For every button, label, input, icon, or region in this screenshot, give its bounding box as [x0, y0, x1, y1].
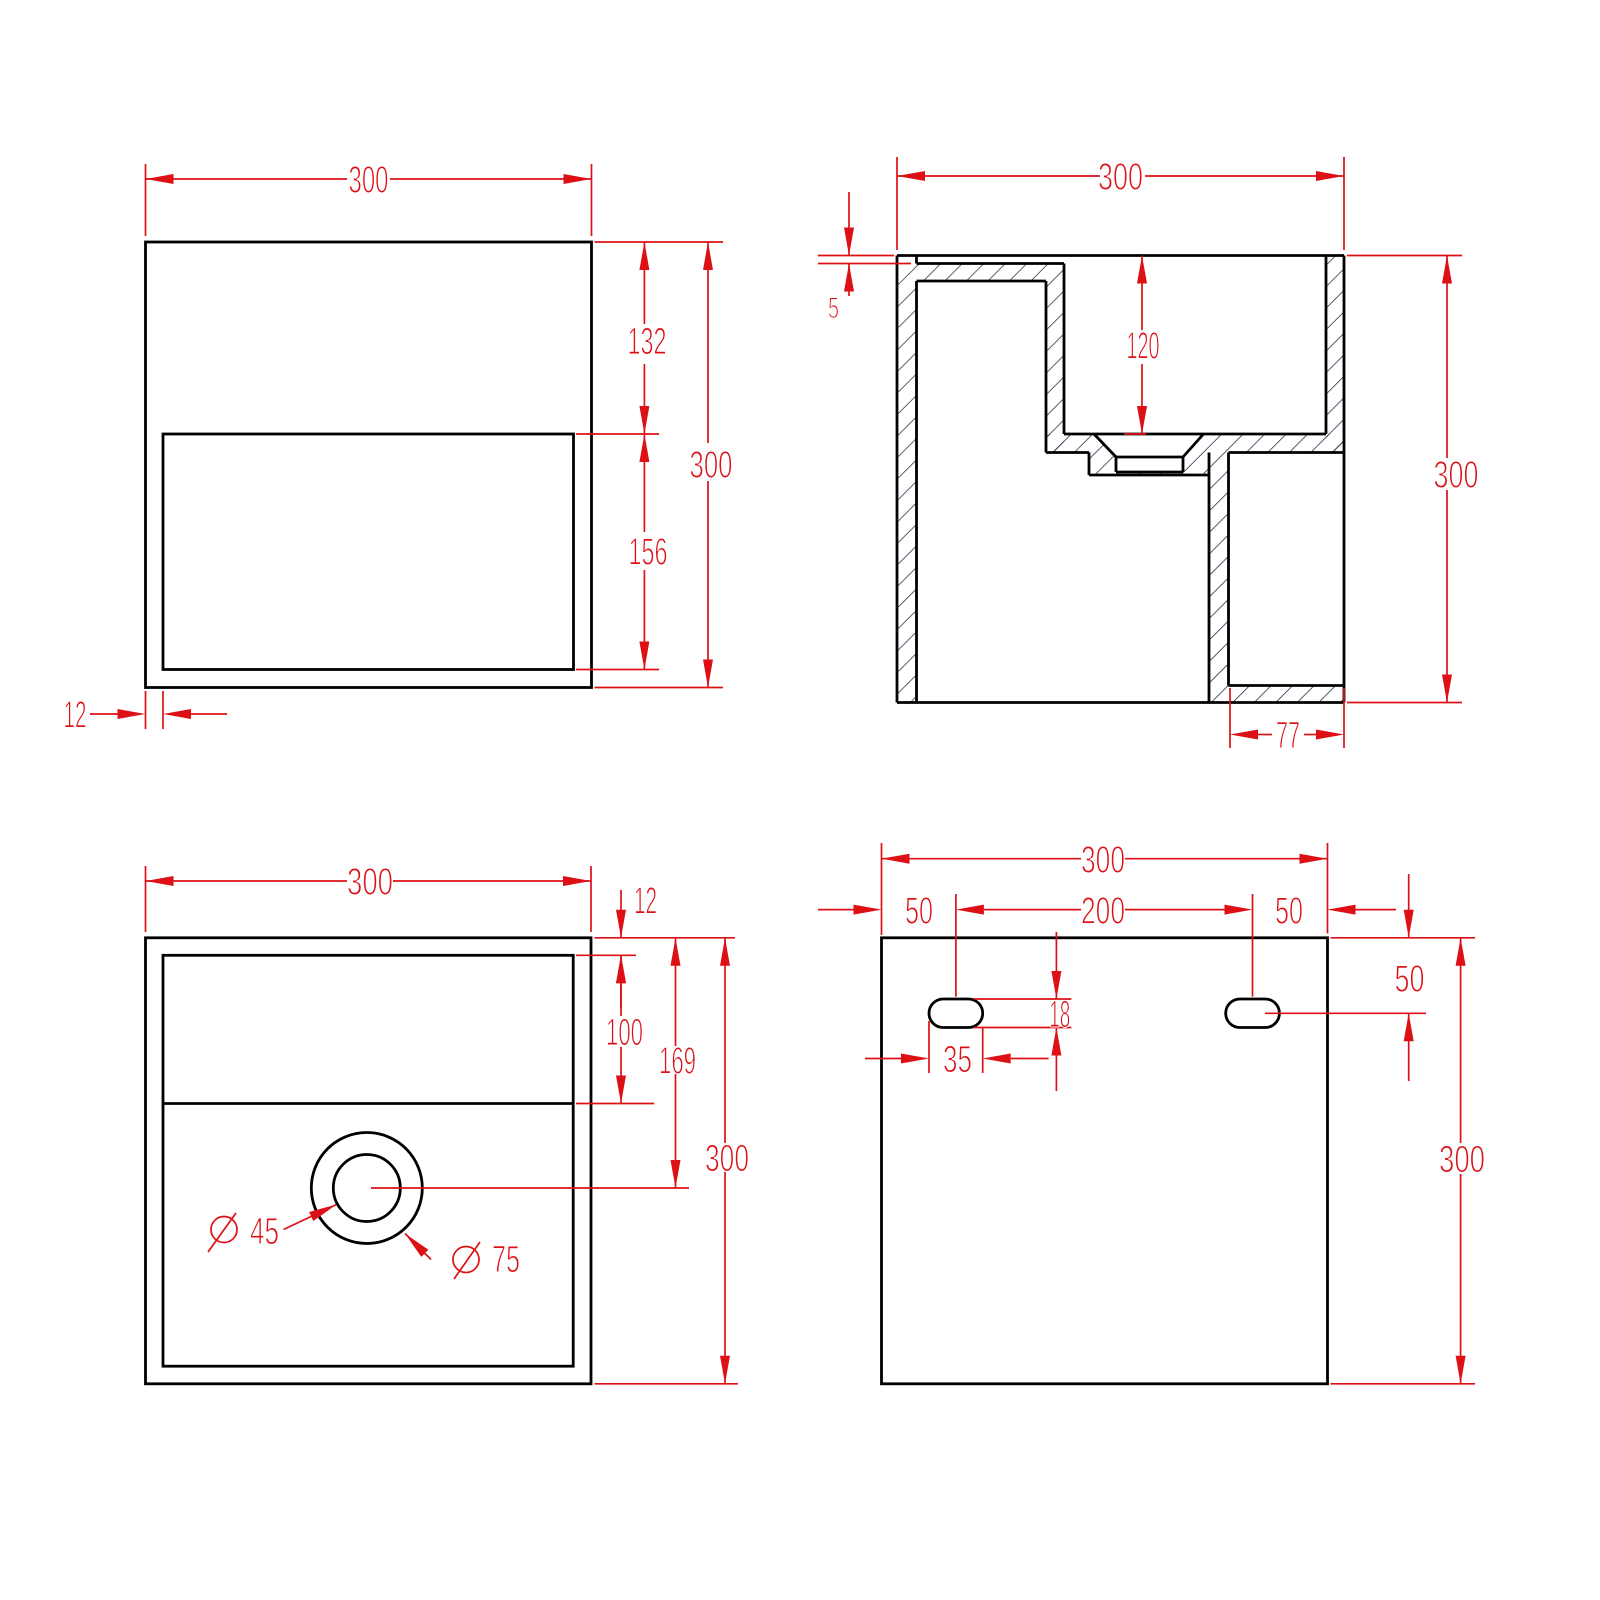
svg-text:5: 5: [828, 292, 839, 325]
svg-text:300: 300: [347, 862, 393, 904]
svg-text:169: 169: [659, 1041, 696, 1083]
svg-text:300: 300: [1081, 839, 1125, 881]
svg-text:45: 45: [250, 1211, 279, 1253]
svg-text:18: 18: [1049, 994, 1070, 1036]
svg-text:50: 50: [905, 890, 933, 932]
svg-text:12: 12: [64, 695, 87, 737]
svg-text:300: 300: [1439, 1139, 1485, 1181]
svg-text:300: 300: [705, 1138, 749, 1180]
svg-text:300: 300: [1434, 455, 1479, 497]
svg-text:300: 300: [349, 160, 389, 202]
svg-text:120: 120: [1127, 326, 1160, 368]
svg-text:300: 300: [690, 445, 733, 487]
svg-text:50: 50: [1275, 890, 1303, 932]
svg-text:50: 50: [1395, 959, 1425, 1001]
svg-text:132: 132: [628, 321, 667, 363]
svg-text:100: 100: [606, 1012, 643, 1054]
svg-text:12: 12: [634, 881, 657, 923]
svg-text:75: 75: [492, 1239, 520, 1281]
svg-text:156: 156: [629, 532, 668, 574]
svg-text:35: 35: [943, 1039, 972, 1081]
svg-text:300: 300: [1098, 157, 1143, 199]
svg-text:200: 200: [1081, 890, 1125, 932]
svg-text:77: 77: [1276, 715, 1300, 757]
